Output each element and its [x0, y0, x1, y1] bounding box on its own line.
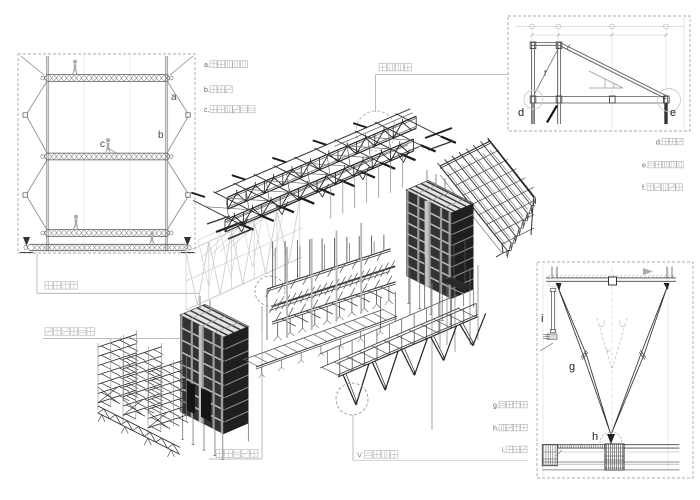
svg-text:i.: i.	[502, 447, 506, 454]
svg-text:e.: e.	[642, 163, 648, 170]
svg-text:d.: d.	[656, 140, 662, 147]
svg-text:V: V	[357, 451, 362, 460]
svg-text:g.: g.	[493, 403, 499, 410]
svg-text:h: h	[592, 431, 598, 443]
svg-text:e: e	[670, 107, 676, 119]
svg-text:a: a	[171, 92, 177, 103]
svg-text:i: i	[541, 313, 543, 325]
svg-text:b: b	[158, 130, 164, 141]
svg-text:h.: h.	[493, 426, 499, 433]
svg-text:f.: f.	[642, 185, 646, 192]
svg-text:c: c	[100, 139, 105, 150]
svg-text:c.: c.	[204, 107, 210, 114]
svg-text:a.: a.	[204, 62, 210, 69]
svg-text:60: 60	[606, 348, 611, 353]
svg-text:b.: b.	[204, 87, 210, 94]
svg-text:d: d	[518, 107, 524, 119]
svg-text:g: g	[569, 361, 575, 373]
